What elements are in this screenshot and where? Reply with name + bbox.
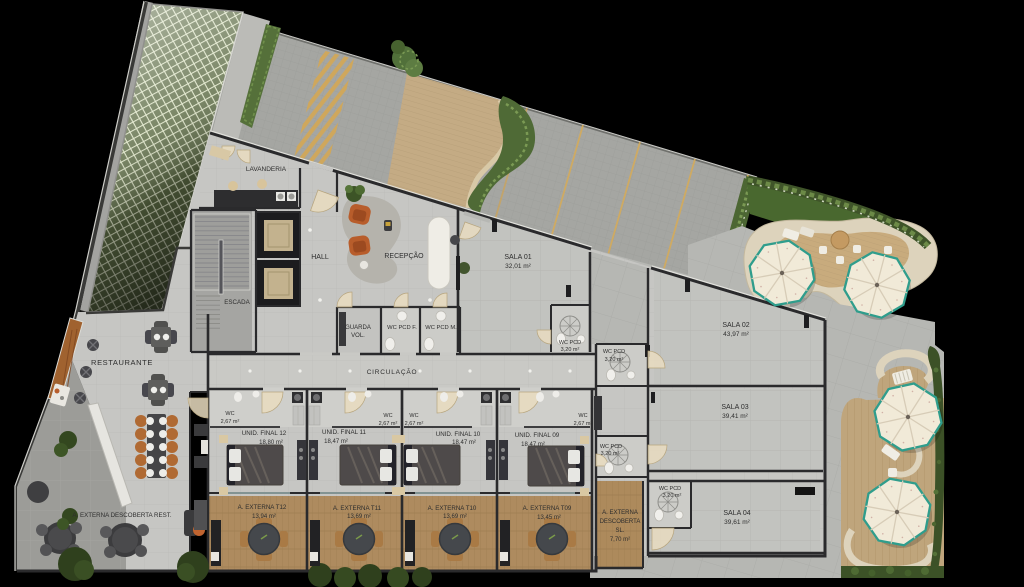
svg-text:UNID. FINAL 09: UNID. FINAL 09 xyxy=(515,432,560,439)
svg-text:SL.: SL. xyxy=(615,528,624,534)
svg-text:A. EXTERNA DESCOBERTA REST.: A. EXTERNA DESCOBERTA REST. xyxy=(72,512,171,519)
svg-text:7,70 m²: 7,70 m² xyxy=(610,537,630,543)
svg-text:18,80 m²: 18,80 m² xyxy=(259,440,283,446)
svg-text:32,01 m²: 32,01 m² xyxy=(505,263,531,270)
svg-text:WC: WC xyxy=(383,413,392,419)
svg-text:WC PCD: WC PCD xyxy=(600,444,622,450)
svg-text:UNID. FINAL 10: UNID. FINAL 10 xyxy=(436,431,481,438)
svg-text:13,45 m²: 13,45 m² xyxy=(537,515,561,521)
svg-text:13,69 m²: 13,69 m² xyxy=(347,514,371,520)
svg-text:WC: WC xyxy=(578,413,587,419)
svg-text:43,97 m²: 43,97 m² xyxy=(723,331,749,338)
svg-text:RECEPÇÃO: RECEPÇÃO xyxy=(384,251,424,260)
svg-text:SALA 02: SALA 02 xyxy=(722,322,749,329)
svg-text:18,47 m²: 18,47 m² xyxy=(324,439,348,445)
svg-text:2,67 m²: 2,67 m² xyxy=(574,421,593,427)
svg-text:WC: WC xyxy=(225,411,234,417)
svg-text:VOL.: VOL. xyxy=(351,333,365,339)
svg-text:A. EXTERNA T10: A. EXTERNA T10 xyxy=(428,505,477,512)
svg-text:ESCADA: ESCADA xyxy=(224,299,250,306)
svg-text:SALA 01: SALA 01 xyxy=(504,254,531,261)
svg-text:WC PCD: WC PCD xyxy=(559,340,581,346)
svg-text:13,94 m²: 13,94 m² xyxy=(252,514,276,520)
svg-text:SALA 03: SALA 03 xyxy=(721,404,748,411)
svg-text:SALA 04: SALA 04 xyxy=(723,510,750,517)
svg-text:A. EXTERNA T12: A. EXTERNA T12 xyxy=(238,504,287,511)
svg-text:WC: WC xyxy=(409,413,418,419)
svg-text:WC PCD: WC PCD xyxy=(603,349,625,355)
svg-text:A. EXTERNA T11: A. EXTERNA T11 xyxy=(333,505,382,512)
svg-text:A. EXTERNA: A. EXTERNA xyxy=(602,510,638,516)
svg-text:13,69 m²: 13,69 m² xyxy=(443,514,467,520)
svg-text:39,41 m²: 39,41 m² xyxy=(722,413,748,420)
svg-text:GUARDA: GUARDA xyxy=(345,325,371,331)
svg-text:3,20 m²: 3,20 m² xyxy=(561,347,580,353)
svg-text:WC PCD: WC PCD xyxy=(659,486,681,492)
svg-text:DESCOBERTA: DESCOBERTA xyxy=(600,519,641,525)
svg-text:2,67 m²: 2,67 m² xyxy=(379,421,398,427)
svg-text:WC PCD F.: WC PCD F. xyxy=(387,325,417,331)
svg-text:39,61 m²: 39,61 m² xyxy=(724,519,750,526)
svg-text:18,47 m²: 18,47 m² xyxy=(452,440,476,446)
svg-text:UNID. FINAL 12: UNID. FINAL 12 xyxy=(242,430,287,437)
svg-text:HALL: HALL xyxy=(311,254,329,261)
svg-text:A. EXTERNA T09: A. EXTERNA T09 xyxy=(523,505,572,512)
svg-text:UNID. FINAL 11: UNID. FINAL 11 xyxy=(322,429,367,436)
svg-text:2,67 m²: 2,67 m² xyxy=(405,421,424,427)
svg-text:2,67 m²: 2,67 m² xyxy=(221,419,240,425)
svg-text:WC PCD M.: WC PCD M. xyxy=(425,325,457,331)
svg-text:18,47 m²: 18,47 m² xyxy=(521,442,545,448)
svg-text:3,20 m²: 3,20 m² xyxy=(605,357,624,363)
svg-text:CIRCULAÇÃO: CIRCULAÇÃO xyxy=(367,367,418,376)
svg-text:RESTAURANTE: RESTAURANTE xyxy=(91,358,153,367)
svg-text:3,20 m²: 3,20 m² xyxy=(601,451,620,457)
svg-text:LAVANDERIA: LAVANDERIA xyxy=(246,166,287,173)
svg-text:3,20 m²: 3,20 m² xyxy=(663,493,682,499)
